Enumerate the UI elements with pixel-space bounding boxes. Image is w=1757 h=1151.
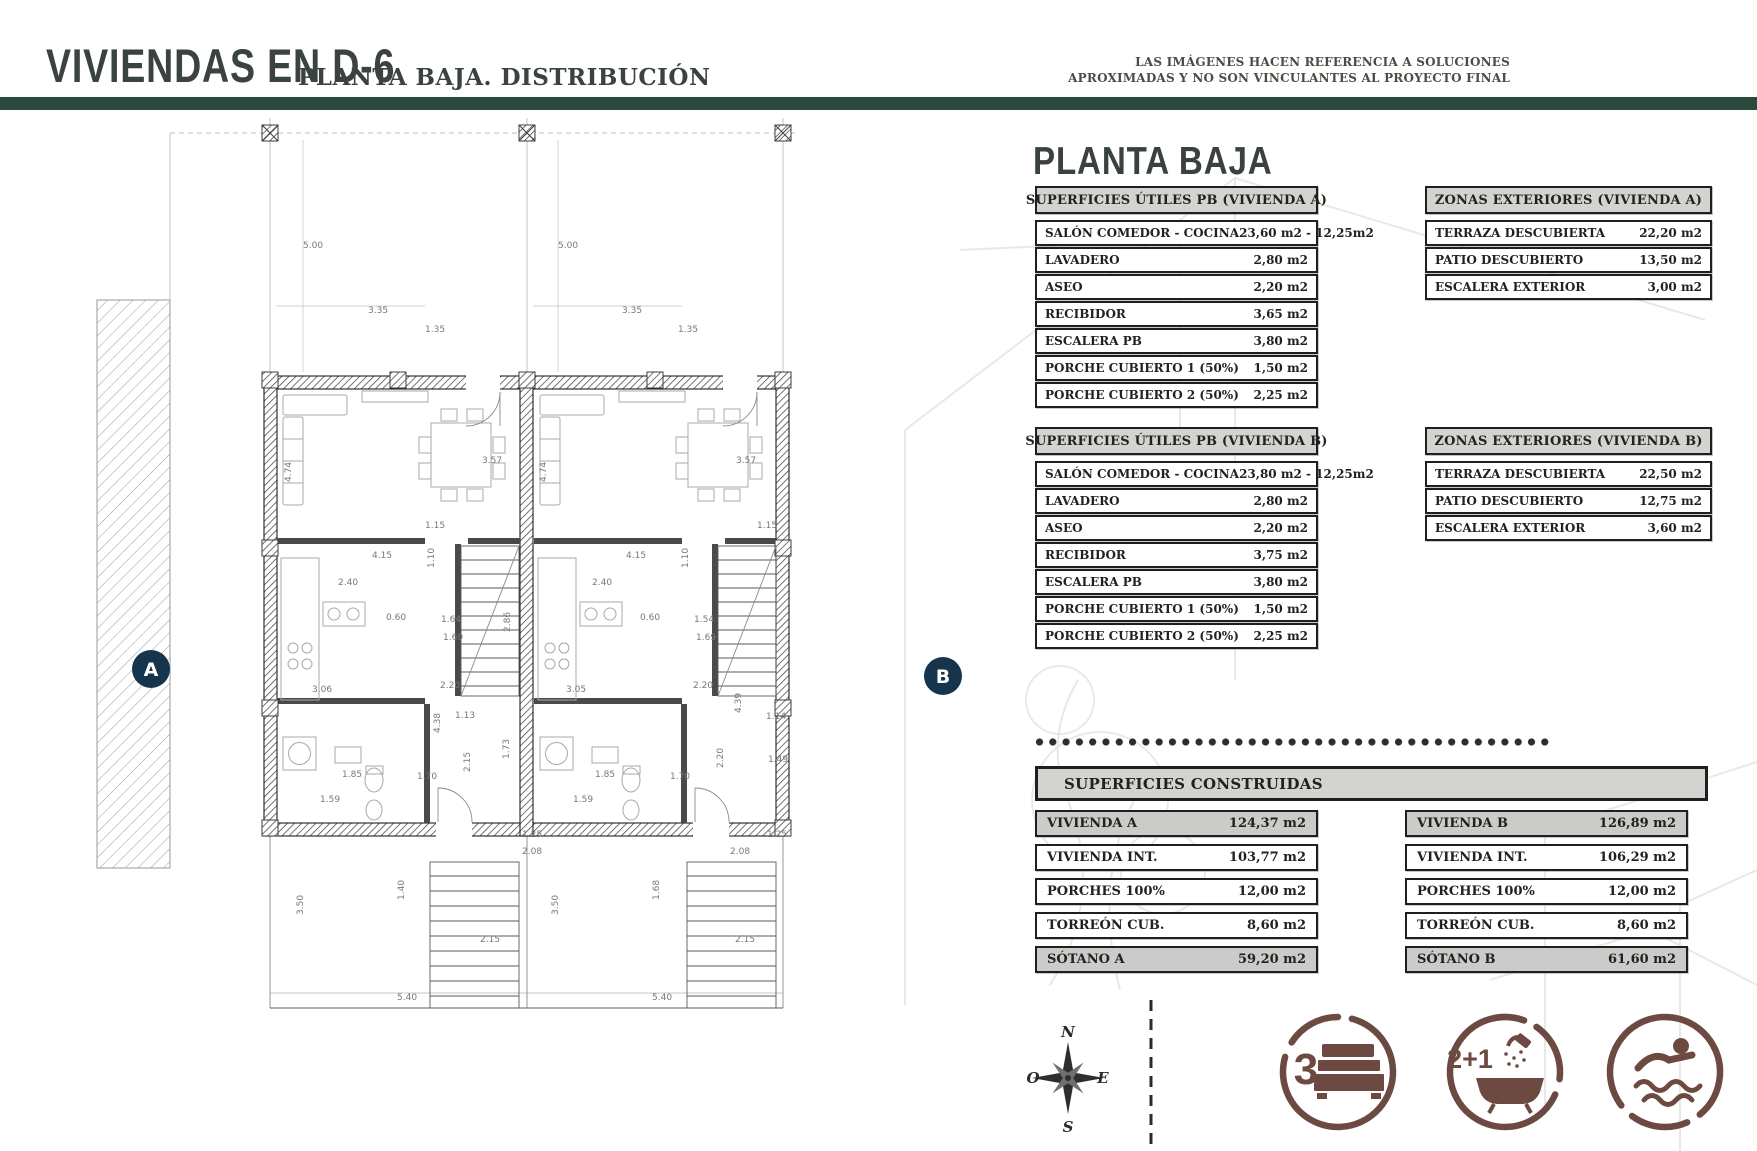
page-subtitle: PLANTA BAJA. DISTRIBUCIÓN (298, 64, 711, 91)
row-label: RECIBIDOR (1045, 548, 1126, 562)
table-row: SALÓN COMEDOR - COCINA 23,60 m2 - 12,25m… (1035, 220, 1318, 246)
row-value: 3,80 m2 (1254, 575, 1308, 589)
brush-circle (1268, 1002, 1409, 1143)
dimension-label: 1.15 (425, 521, 445, 531)
row-value: 8,60 m2 (1617, 918, 1676, 933)
dimension-label: 2.08 (730, 847, 750, 857)
disclaimer: LAS IMÁGENES HACEN REFERENCIA A SOLUCION… (1068, 54, 1510, 86)
row-label: VIVIENDA INT. (1047, 850, 1158, 865)
row-value: 103,77 m2 (1229, 850, 1306, 865)
dimension-label: 5.40 (652, 993, 672, 1003)
planta-baja-heading: PLANTA BAJA (1033, 140, 1273, 184)
dimension-label: 1.69 (443, 633, 463, 643)
dimension-label: 3.35 (368, 306, 388, 316)
unit-a-badge: A (132, 650, 170, 688)
table-row: VIVIENDA A 124,37 m2 (1035, 810, 1318, 837)
unit-b-letter: B (936, 666, 950, 688)
row-value: 12,75 m2 (1639, 494, 1702, 508)
dimension-label: 1.25 (767, 830, 787, 840)
row-value: 2,80 m2 (1254, 494, 1308, 508)
dimension-label: 2.08 (522, 847, 542, 857)
unit-a-letter: A (144, 659, 159, 681)
row-value: 2,20 m2 (1254, 280, 1308, 294)
row-label: LAVADERO (1045, 253, 1120, 267)
row-value: 2,25 m2 (1254, 388, 1308, 402)
table-row: ESCALERA PB 3,80 m2 (1035, 569, 1318, 595)
row-value: 3,00 m2 (1648, 280, 1702, 294)
dimension-label: 1.70 (417, 772, 437, 782)
dimension-label: 1.10 (427, 548, 437, 568)
dimension-label: 5.00 (558, 241, 578, 251)
table-row: ASEO 2,20 m2 (1035, 515, 1318, 541)
table-row: VIVIENDA INT. 106,29 m2 (1405, 844, 1688, 871)
row-label: PORCHES 100% (1047, 884, 1165, 899)
row-label: PORCHE CUBIERTO 2 (50%) (1045, 388, 1239, 402)
dimension-label: 1.40 (397, 880, 407, 900)
row-value: 8,60 m2 (1247, 918, 1306, 933)
dimension-label: 1.10 (681, 548, 691, 568)
superficies-construidas-header: SUPERFICIES CONSTRUIDAS (1035, 766, 1708, 801)
row-label: PORCHE CUBIERTO 1 (50%) (1045, 361, 1239, 375)
row-value: 13,50 m2 (1639, 253, 1702, 267)
dimension-label: 2.20 (440, 681, 460, 691)
dimension-label: 1.73 (502, 739, 512, 759)
table-row: LAVADERO 2,80 m2 (1035, 488, 1318, 514)
table-header: SUPERFICIES ÚTILES PB (VIVIENDA A) (1035, 186, 1318, 214)
superficies-utiles-a-table: SUPERFICIES ÚTILES PB (VIVIENDA A) SALÓN… (1035, 186, 1318, 409)
row-label: RECIBIDOR (1045, 307, 1126, 321)
row-value: 1,50 m2 (1254, 602, 1308, 616)
table-header: ZONAS EXTERIORES (VIVIENDA B) (1425, 427, 1712, 455)
row-label: ESCALERA EXTERIOR (1435, 280, 1585, 294)
row-value: 124,37 m2 (1229, 816, 1306, 831)
swimmer-icon (1636, 1038, 1700, 1105)
dimension-label: 2.40 (592, 578, 612, 588)
row-value: 126,89 m2 (1599, 816, 1676, 831)
zonas-exteriores-a-table: ZONAS EXTERIORES (VIVIENDA A) TERRAZA DE… (1425, 186, 1712, 301)
row-value: 22,20 m2 (1639, 226, 1702, 240)
row-value: 2,25 m2 (1254, 629, 1308, 643)
table-row: VIVIENDA B 126,89 m2 (1405, 810, 1688, 837)
table-row: PORCHE CUBIERTO 1 (50%) 1,50 m2 (1035, 596, 1318, 622)
row-label: SÓTANO B (1417, 952, 1495, 967)
row-label: PATIO DESCUBIERTO (1435, 494, 1583, 508)
construidas-columna-b: VIVIENDA B 126,89 m2 VIVIENDA INT. 106,2… (1405, 810, 1688, 980)
dimension-label: 2.86 (503, 612, 513, 632)
dimension-label: 1.35 (678, 325, 698, 335)
table-row: TORREÓN CUB. 8,60 m2 (1035, 912, 1318, 939)
dimension-label: 1.14 (766, 712, 786, 722)
row-label: PORCHES 100% (1417, 884, 1535, 899)
compass-west-label: O (1026, 1069, 1039, 1087)
row-label: TORREÓN CUB. (1047, 918, 1164, 933)
dimension-labels: 5.005.003.351.353.351.354.744.743.573.57… (284, 241, 788, 1003)
dimension-label: 1.85 (595, 770, 615, 780)
dimension-label: 3.06 (312, 685, 332, 695)
dimension-label: 3.57 (736, 456, 756, 466)
row-value: 3,75 m2 (1254, 548, 1308, 562)
dotted-separator (1035, 737, 1554, 747)
bed-icon (1314, 1044, 1384, 1099)
table-row: RECIBIDOR 3,75 m2 (1035, 542, 1318, 568)
row-value: 61,60 m2 (1608, 952, 1676, 967)
row-value: 2,20 m2 (1254, 521, 1308, 535)
table-row: ASEO 2,20 m2 (1035, 274, 1318, 300)
table-row: TERRAZA DESCUBIERTA 22,50 m2 (1425, 461, 1712, 487)
compass-south-label: S (1063, 1118, 1074, 1136)
dimension-label: 1.59 (573, 795, 593, 805)
unit-b-badge: B (924, 657, 962, 695)
dimension-label: 4.38 (433, 713, 443, 733)
table-row: ESCALERA EXTERIOR 3,00 m2 (1425, 274, 1712, 300)
table-row: PATIO DESCUBIERTO 12,75 m2 (1425, 488, 1712, 514)
row-label: ASEO (1045, 280, 1083, 294)
construidas-columna-a: VIVIENDA A 124,37 m2 VIVIENDA INT. 103,7… (1035, 810, 1318, 980)
table-row: SALÓN COMEDOR - COCINA 23,80 m2 - 12,25m… (1035, 461, 1318, 487)
dimension-label: 2.20 (716, 748, 726, 768)
disclaimer-line-1: LAS IMÁGENES HACEN REFERENCIA A SOLUCION… (1068, 54, 1510, 70)
dimension-label: 3.50 (551, 895, 561, 915)
dimension-label: 4.15 (372, 551, 392, 561)
dimension-label: 2.15 (463, 752, 473, 772)
row-value: 3,60 m2 (1648, 521, 1702, 535)
bedrooms-feature: 3 (1268, 1002, 1409, 1143)
table-row: TERRAZA DESCUBIERTA 22,20 m2 (1425, 220, 1712, 246)
table-row: ESCALERA PB 3,80 m2 (1035, 328, 1318, 354)
dimension-label: 3.35 (622, 306, 642, 316)
dimension-label: 1.49 (768, 755, 788, 765)
dimension-label: 4.74 (539, 462, 549, 482)
dimension-label: 1.35 (425, 325, 445, 335)
dimension-label: 1.70 (670, 772, 690, 782)
row-value: 106,29 m2 (1599, 850, 1676, 865)
dimension-label: 4.74 (284, 462, 294, 482)
dimension-label: 0.60 (640, 613, 660, 623)
dimension-label: 2.40 (338, 578, 358, 588)
table-row: ESCALERA EXTERIOR 3,60 m2 (1425, 515, 1712, 541)
table-header: SUPERFICIES ÚTILES PB (VIVIENDA B) (1035, 427, 1318, 455)
bathrooms-feature: 2+1 (1428, 995, 1583, 1150)
row-label: TORREÓN CUB. (1417, 918, 1534, 933)
dimension-label: 1.64 (441, 615, 461, 625)
row-value: 59,20 m2 (1238, 952, 1306, 967)
superficies-utiles-b-table: SUPERFICIES ÚTILES PB (VIVIENDA B) SALÓN… (1035, 427, 1318, 650)
row-value: 12,00 m2 (1608, 884, 1676, 899)
dimension-label: 3.05 (566, 685, 586, 695)
dimension-label: 3.57 (482, 456, 502, 466)
table-row: LAVADERO 2,80 m2 (1035, 247, 1318, 273)
bathrooms-count: 2+1 (1447, 1044, 1493, 1074)
row-value: 1,50 m2 (1254, 361, 1308, 375)
table-row: VIVIENDA INT. 103,77 m2 (1035, 844, 1318, 871)
row-value: 3,80 m2 (1254, 334, 1308, 348)
dimension-label: 1.25 (522, 830, 542, 840)
dimension-label: 5.00 (303, 241, 323, 251)
table-row: RECIBIDOR 3,65 m2 (1035, 301, 1318, 327)
dimension-label: 1.85 (342, 770, 362, 780)
row-label: PORCHE CUBIERTO 2 (50%) (1045, 629, 1239, 643)
table-row: PORCHES 100% 12,00 m2 (1405, 878, 1688, 905)
row-label: ASEO (1045, 521, 1083, 535)
table-row: TORREÓN CUB. 8,60 m2 (1405, 912, 1688, 939)
site-hatch-strip (97, 300, 170, 868)
dimension-label: 4.15 (626, 551, 646, 561)
row-label: SALÓN COMEDOR - COCINA (1045, 226, 1239, 240)
row-value: 3,65 m2 (1254, 307, 1308, 321)
dimension-label: 1.59 (320, 795, 340, 805)
bottom-strip: N E S O 3 2+1 (1020, 990, 1757, 1151)
row-label: TERRAZA DESCUBIERTA (1435, 467, 1605, 481)
compass-north-label: N (1060, 1023, 1076, 1041)
table-row: PORCHE CUBIERTO 1 (50%) 1,50 m2 (1035, 355, 1318, 381)
accent-divider-bar (0, 97, 1757, 110)
table-header: ZONAS EXTERIORES (VIVIENDA A) (1425, 186, 1712, 214)
table-row: SÓTANO B 61,60 m2 (1405, 946, 1688, 973)
row-label: VIVIENDA B (1417, 816, 1508, 831)
dimension-label: 1.13 (455, 711, 475, 721)
zonas-exteriores-b-table: ZONAS EXTERIORES (VIVIENDA B) TERRAZA DE… (1425, 427, 1712, 542)
row-value: 2,80 m2 (1254, 253, 1308, 267)
table-row: PORCHE CUBIERTO 2 (50%) 2,25 m2 (1035, 623, 1318, 649)
row-label: ESCALERA PB (1045, 575, 1142, 589)
row-value: 22,50 m2 (1639, 467, 1702, 481)
brush-circle (1590, 997, 1740, 1147)
dimension-label: 0.60 (386, 613, 406, 623)
compass-rose: N E S O (1026, 1023, 1109, 1136)
row-label: TERRAZA DESCUBIERTA (1435, 226, 1605, 240)
row-value: 23,60 m2 - 12,25m2 (1239, 226, 1374, 240)
row-label: SÓTANO A (1047, 952, 1125, 967)
table-row: PORCHES 100% 12,00 m2 (1035, 878, 1318, 905)
row-label: PATIO DESCUBIERTO (1435, 253, 1583, 267)
row-label: VIVIENDA INT. (1417, 850, 1528, 865)
dimension-label: 1.68 (652, 880, 662, 900)
row-label: ESCALERA PB (1045, 334, 1142, 348)
compass-east-label: E (1096, 1069, 1109, 1087)
dimension-label: 3.50 (296, 895, 306, 915)
row-label: SALÓN COMEDOR - COCINA (1045, 467, 1239, 481)
row-label: ESCALERA EXTERIOR (1435, 521, 1585, 535)
door-openings (436, 374, 757, 838)
table-row: PORCHE CUBIERTO 2 (50%) 2,25 m2 (1035, 382, 1318, 408)
row-label: VIVIENDA A (1047, 816, 1137, 831)
dimension-label: 5.40 (397, 993, 417, 1003)
dimension-label: 2.20 (693, 681, 713, 691)
pool-feature (1590, 997, 1740, 1147)
dimension-label: 1.69 (696, 633, 716, 643)
dimension-label: 2.15 (735, 935, 755, 945)
table-row: PATIO DESCUBIERTO 13,50 m2 (1425, 247, 1712, 273)
row-value: 23,80 m2 - 12,25m2 (1239, 467, 1374, 481)
floor-plan: A B 5.005.003.351.353.351.354.744.743.57… (85, 110, 965, 1045)
dimension-label: 4.39 (734, 693, 744, 713)
dimension-label: 2.15 (480, 935, 500, 945)
row-label: LAVADERO (1045, 494, 1120, 508)
dimension-label: 1.15 (757, 521, 777, 531)
row-label: PORCHE CUBIERTO 1 (50%) (1045, 602, 1239, 616)
table-row: SÓTANO A 59,20 m2 (1035, 946, 1318, 973)
walls (264, 376, 789, 836)
dimension-label: 1.54 (694, 615, 714, 625)
disclaimer-line-2: APROXIMADAS Y NO SON VINCULANTES AL PROY… (1068, 70, 1510, 86)
row-value: 12,00 m2 (1238, 884, 1306, 899)
